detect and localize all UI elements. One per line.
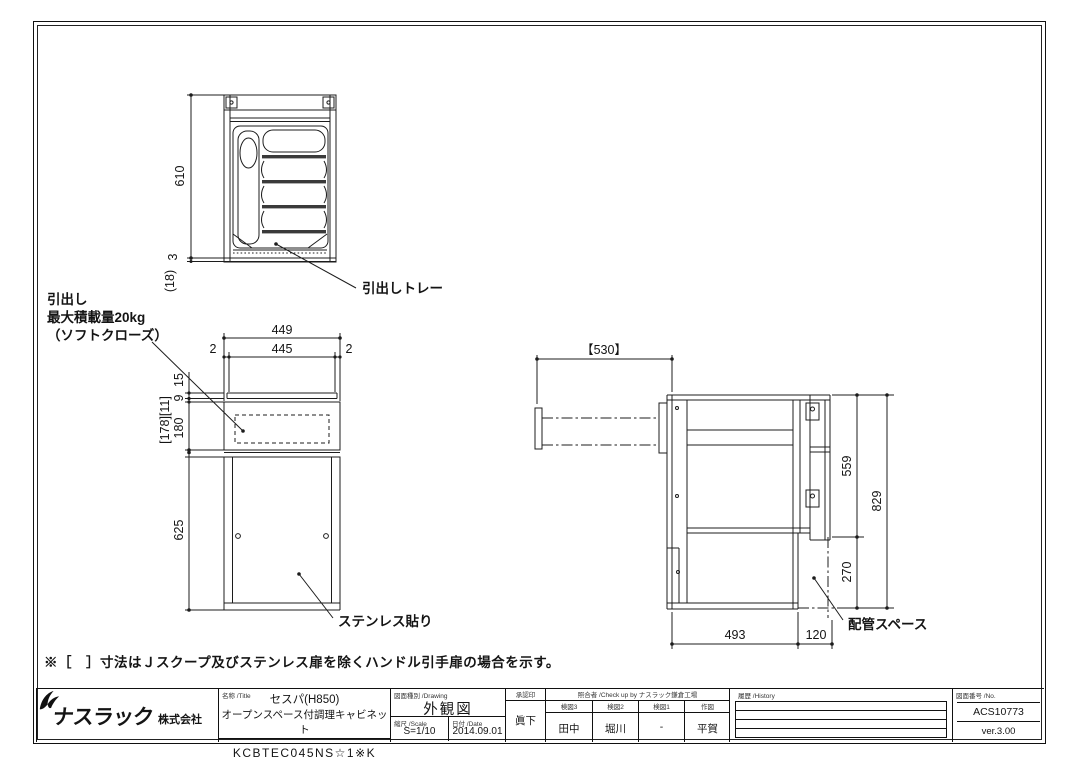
dim-15: 15 bbox=[172, 373, 186, 387]
title-block: ナスラック 株式会社 名称 /Title セスパ(H850) オープンスペース付… bbox=[36, 688, 1044, 741]
check-header: 照合者 /Check up by ナスラック鎌倉工場 bbox=[546, 689, 729, 701]
drawer-label-2: 最大積載量20kg bbox=[47, 309, 145, 325]
title-header: 名称 /Title bbox=[222, 690, 251, 700]
model-number: KCBTEC045NS☆1※K bbox=[219, 746, 390, 760]
history-box bbox=[735, 701, 947, 738]
product-name: オープンスペース付調理キャビネット bbox=[219, 707, 390, 739]
dim-449: 449 bbox=[272, 323, 293, 337]
dim-180: 180 bbox=[172, 418, 186, 439]
check-col-3-header: 検図3 bbox=[546, 701, 592, 713]
tray-label: 引出しトレー bbox=[362, 280, 443, 296]
pipe-space-label: 配管スペース bbox=[848, 616, 927, 632]
dim-270: 270 bbox=[840, 562, 854, 583]
company-suffix: 株式会社 bbox=[158, 711, 202, 727]
company-logo-cell: ナスラック 株式会社 bbox=[36, 689, 218, 742]
check-section: 照合者 /Check up by ナスラック鎌倉工場 検図3 田中 検図2 堀川… bbox=[545, 689, 729, 742]
check-col-draft-header: 作図 bbox=[685, 701, 730, 713]
top-view-dimensions: 610 3 (18) bbox=[163, 93, 224, 292]
dim-18-ref: (18) bbox=[163, 270, 177, 292]
company-name: ナスラック bbox=[51, 701, 154, 731]
stainless-label: ステンレス貼り bbox=[338, 613, 433, 629]
title-cell: 名称 /Title セスパ(H850) オープンスペース付調理キャビネット KC… bbox=[218, 689, 390, 742]
dim-178-11: [178][11] bbox=[158, 396, 172, 444]
front-view-dimensions: 449 445 2 2 15 9 [178][11] 180 625 bbox=[158, 323, 353, 612]
check-col-2-header: 検図2 bbox=[593, 701, 638, 713]
dim-445: 445 bbox=[272, 342, 293, 356]
dim-493: 493 bbox=[725, 628, 746, 642]
dim-625: 625 bbox=[172, 520, 186, 541]
drawing-canvas: 610 3 (18) 引出しトレー 449 445 bbox=[0, 0, 1080, 763]
check-col-3: 検図3 田中 bbox=[546, 701, 592, 742]
footnote: ※［ ］寸法はＪスクープ及びステンレス扉を除くハンドル引手扉の場合を示す。 bbox=[44, 651, 560, 671]
check-col-2: 検図2 堀川 bbox=[592, 701, 638, 742]
dim-3: 3 bbox=[166, 253, 180, 260]
dim-559: 559 bbox=[840, 456, 854, 477]
top-view-geometry bbox=[224, 95, 336, 262]
drawing-type-cell: 図面種別 /Drawing 外観図 縮尺 /Scale S=1/10 日付 /D… bbox=[390, 689, 505, 742]
date-header: 日付 /Date bbox=[452, 718, 482, 728]
side-view-geometry bbox=[535, 395, 840, 618]
dim-829: 829 bbox=[870, 491, 884, 512]
drawing-number-value: ACS10773 bbox=[957, 702, 1040, 722]
drawing-number-header: 図面番号 /No. bbox=[956, 690, 996, 700]
pipe-space-callout: 配管スペース bbox=[812, 576, 927, 632]
dim-530: 【530】 bbox=[581, 343, 627, 357]
dim-2-right: 2 bbox=[346, 342, 353, 356]
check-col-1-value: - bbox=[639, 721, 684, 733]
check-col-3-value: 田中 bbox=[546, 721, 592, 736]
history-header: 履歴 /History bbox=[738, 690, 775, 700]
drawer-callout: 引出し 最大積載量20kg （ソフトクローズ） bbox=[47, 291, 245, 433]
scale-cell: 縮尺 /Scale S=1/10 bbox=[391, 717, 448, 741]
drawer-label-1: 引出し bbox=[47, 291, 88, 307]
check-col-draft: 作図 平賀 bbox=[684, 701, 730, 742]
approval-cell: 承認印 眞下 bbox=[505, 689, 545, 742]
check-col-1-header: 検図1 bbox=[639, 701, 684, 713]
dim-610: 610 bbox=[173, 166, 187, 187]
drawing-number-cell: 図面番号 /No. ACS10773 ver.3.00 bbox=[952, 689, 1044, 742]
stainless-callout: ステンレス貼り bbox=[297, 572, 432, 629]
dim-2-left: 2 bbox=[210, 342, 217, 356]
dim-120: 120 bbox=[806, 628, 827, 642]
check-col-1: 検図1 - bbox=[638, 701, 684, 742]
approval-value: 眞下 bbox=[506, 713, 545, 728]
history-cell: 履歴 /History bbox=[729, 689, 952, 742]
check-col-2-value: 堀川 bbox=[593, 721, 638, 736]
dim-9: 9 bbox=[172, 394, 186, 401]
front-view-geometry bbox=[224, 393, 340, 610]
scale-header: 縮尺 /Scale bbox=[394, 718, 427, 728]
drawing-version: ver.3.00 bbox=[953, 726, 1044, 737]
check-col-draft-value: 平賀 bbox=[685, 721, 730, 736]
drawer-label-3: （ソフトクローズ） bbox=[47, 327, 168, 343]
approval-header: 承認印 bbox=[506, 689, 545, 701]
drawing-type-header: 図面種別 /Drawing bbox=[394, 690, 447, 700]
date-cell: 日付 /Date 2014.09.01 bbox=[448, 717, 506, 741]
